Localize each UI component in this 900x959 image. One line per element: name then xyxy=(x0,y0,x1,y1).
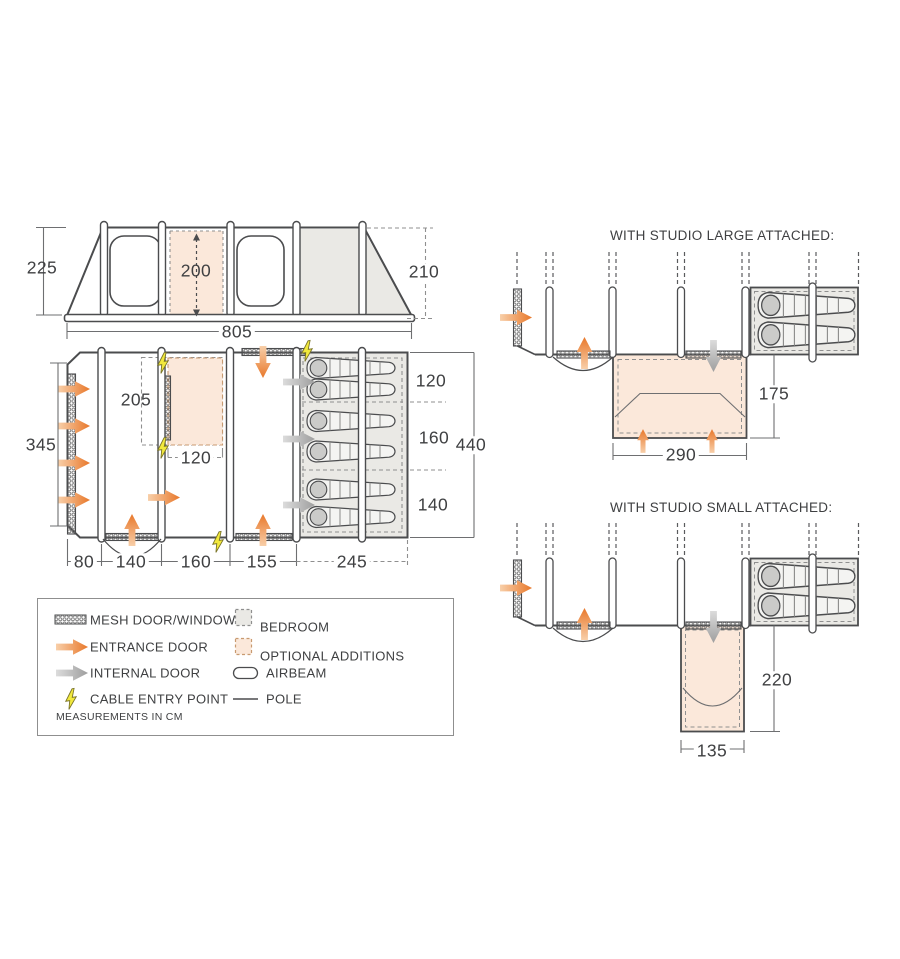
internal-door-icon xyxy=(55,664,89,682)
dim-section-140: 140 xyxy=(418,496,448,514)
legend-note: MEASUREMENTS IN CM xyxy=(56,711,183,723)
legend-optional-label: OPTIONAL ADDITIONS xyxy=(260,649,404,664)
dim-bottom-160: 160 xyxy=(178,553,214,571)
studio-small-title: WITH STUDIO SMALL ATTACHED: xyxy=(610,500,832,515)
dim-elevation-left: 225 xyxy=(27,259,57,277)
elevation-window xyxy=(110,236,161,306)
legend-mesh-label: MESH DOOR/WINDOW xyxy=(90,613,236,628)
studio-small-footprint xyxy=(681,626,744,732)
dim-section-160: 160 xyxy=(419,429,449,447)
legend-cable-label: CABLE ENTRY POINT xyxy=(90,692,228,707)
dim-section-120: 120 xyxy=(416,372,446,390)
dim-bottom-140: 140 xyxy=(113,553,149,571)
floor-plan-view xyxy=(50,340,474,566)
studio-small-view xyxy=(500,523,859,753)
dim-plan-left: 345 xyxy=(26,436,56,454)
tent-floorplan-diagram: 225 200 210 805 345 205 120 120 160 140 … xyxy=(0,0,900,959)
studio-large-view xyxy=(500,252,859,460)
airbeam-icon xyxy=(232,665,260,681)
dim-bedroom-depth: 205 xyxy=(121,391,151,409)
legend-airbeam-label: AIRBEAM xyxy=(266,666,327,681)
optional-additions-swatch-icon xyxy=(234,637,254,657)
dim-elevation-right: 210 xyxy=(406,263,442,281)
legend: MESH DOOR/WINDOW ENTRANCE DOOR INTERNAL … xyxy=(37,598,454,736)
entrance-door-icon xyxy=(55,638,89,656)
dim-interior-height: 200 xyxy=(181,262,211,280)
legend-bedroom-label: BEDROOM xyxy=(260,620,329,635)
mesh-door-window-icon xyxy=(54,613,88,627)
studio-large-title: WITH STUDIO LARGE ATTACHED: xyxy=(610,228,834,243)
dim-total-width: 805 xyxy=(219,323,255,341)
cut-airbeam-stubs xyxy=(517,523,859,558)
cut-airbeam-stubs xyxy=(517,252,859,287)
dim-studio-large-depth: 175 xyxy=(756,385,792,403)
elevation-window xyxy=(237,236,284,306)
dim-optional-width: 120 xyxy=(178,449,214,467)
studio-large-footprint xyxy=(613,355,747,439)
dim-bottom-155: 155 xyxy=(244,553,280,571)
dim-bottom-245: 245 xyxy=(334,553,370,571)
pole-icon xyxy=(232,695,260,703)
legend-entrance-label: ENTRANCE DOOR xyxy=(90,640,208,655)
dim-studio-large-width: 290 xyxy=(663,446,699,464)
legend-pole-label: POLE xyxy=(266,692,302,707)
bedroom-swatch-icon xyxy=(234,608,254,628)
optional-addition-area xyxy=(168,358,223,445)
legend-internal-label: INTERNAL DOOR xyxy=(90,666,200,681)
dim-studio-small-width: 135 xyxy=(694,742,730,760)
dim-studio-small-depth: 220 xyxy=(759,671,795,689)
cable-entry-point-icon xyxy=(61,687,81,711)
elevation-bedroom-zone xyxy=(300,229,363,315)
diagram-linework xyxy=(0,0,900,959)
dim-total-depth: 440 xyxy=(453,436,489,454)
dim-bottom-80: 80 xyxy=(71,553,97,571)
